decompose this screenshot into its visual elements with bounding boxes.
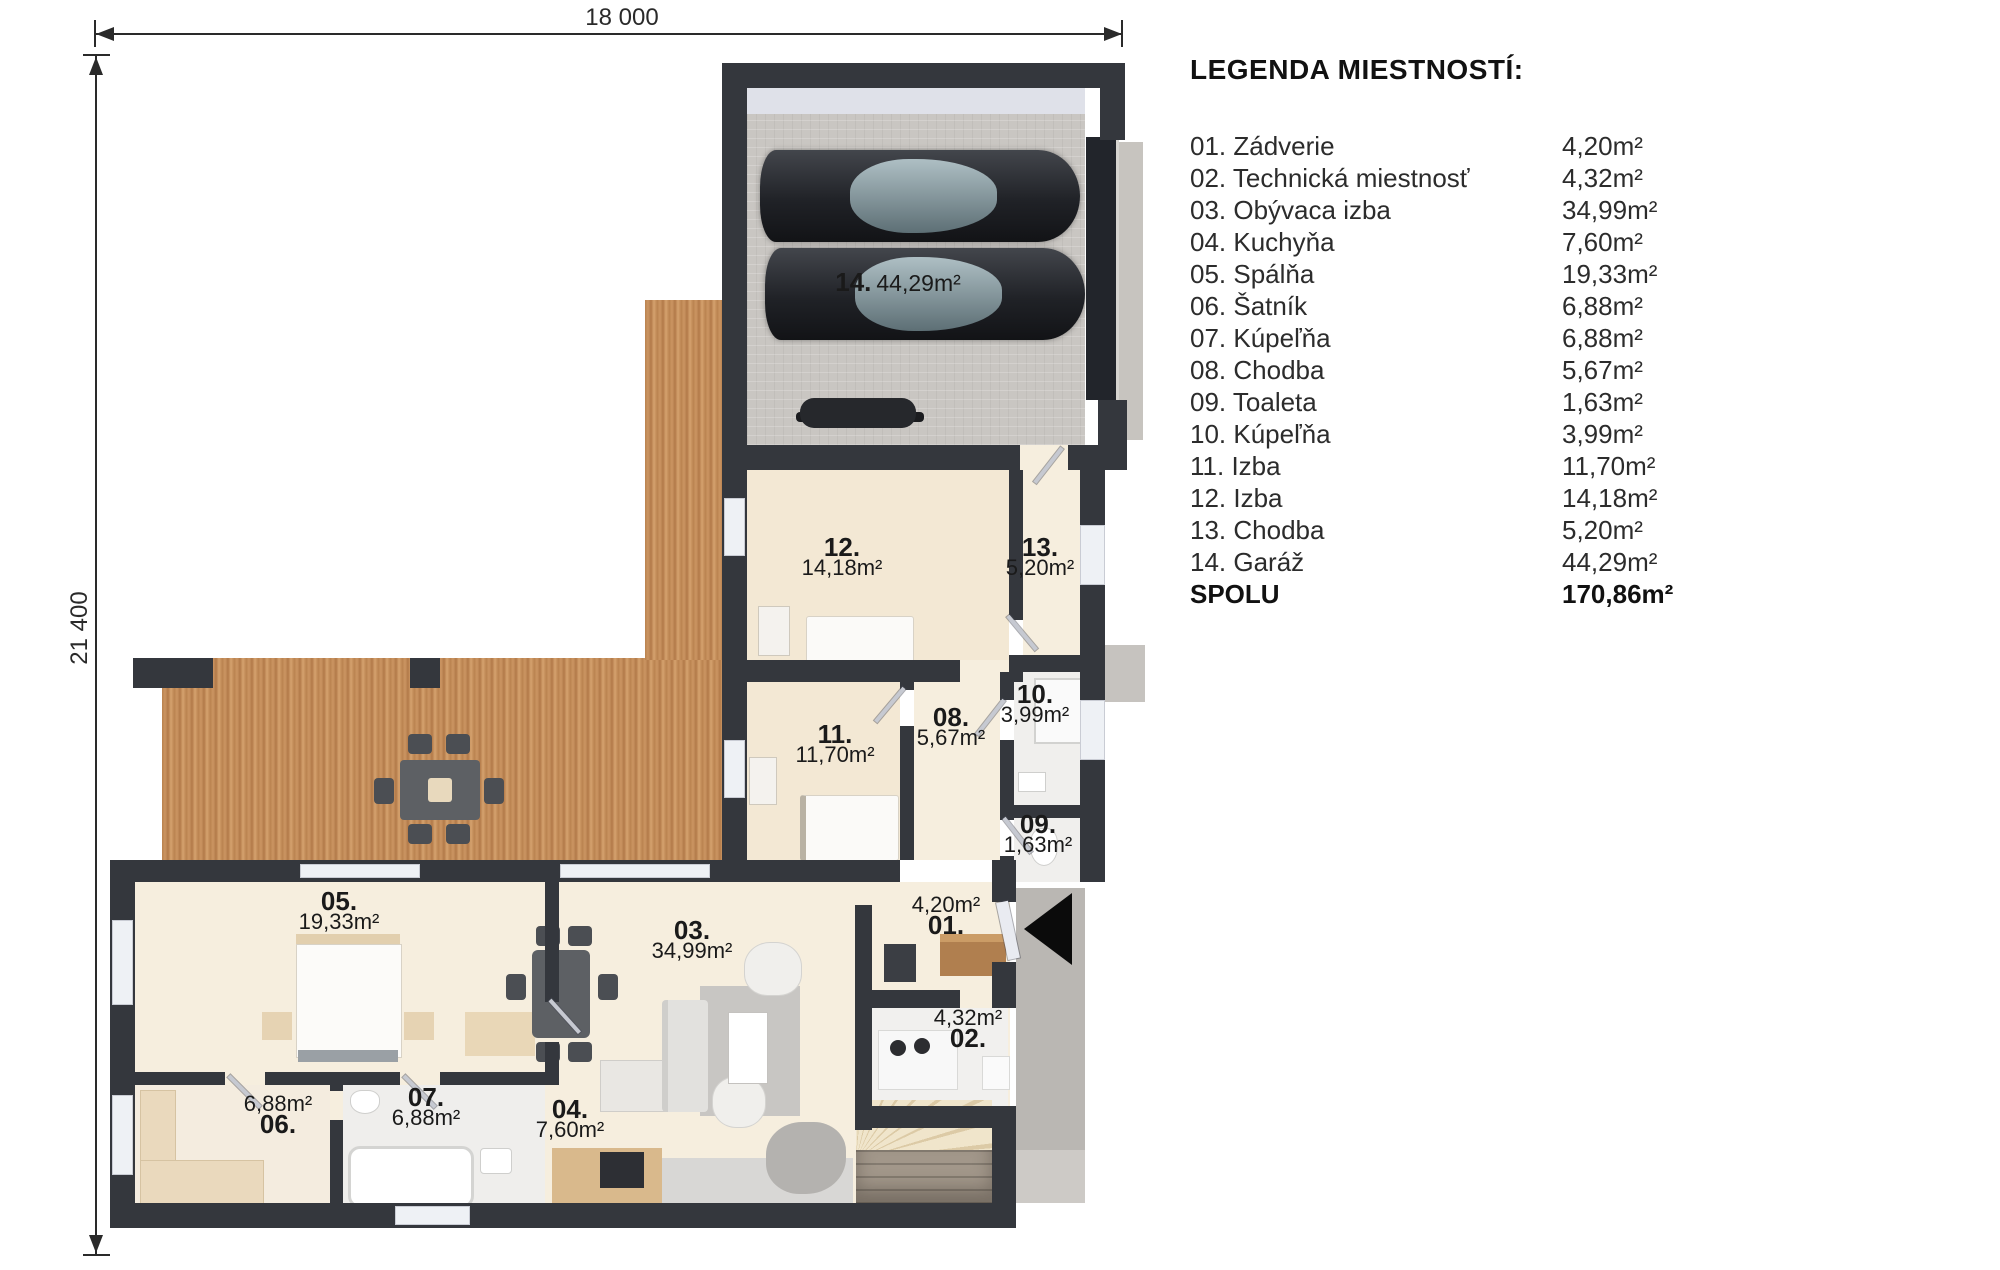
garage-wall-bottom-right (1068, 445, 1125, 470)
dim-label-top: 18 000 (585, 4, 658, 32)
floor-terrace-strip (645, 300, 722, 660)
sink-07 (480, 1148, 512, 1174)
legend-row: 11. Izba11,70m² (1190, 450, 1673, 482)
room-label-14: 14.44,29m² (835, 272, 961, 295)
bathtub (348, 1146, 474, 1208)
legend-row: 04. Kuchyňa7,60m² (1190, 226, 1673, 258)
terrace-chair (374, 778, 394, 804)
legend-row: 01. Zádverie4,20m² (1190, 130, 1673, 162)
desk-room-11 (749, 757, 777, 805)
garage-wall-ledge (747, 88, 1085, 114)
dresser-room-05 (465, 1012, 535, 1056)
desk-room-12 (758, 606, 790, 656)
terrace-chair (446, 734, 470, 754)
room-label-07: 07.6,88m² (392, 1087, 460, 1128)
nightstand-left (262, 1012, 292, 1040)
bed-room-05 (296, 944, 402, 1058)
wall-11-08 (900, 726, 914, 860)
dim-arrow-left-icon (96, 27, 114, 41)
terrace-wall-stub-left (133, 658, 213, 688)
driveway-strip (1117, 142, 1143, 440)
room-label-05: 05.19,33m² (299, 891, 380, 932)
room-label-03: 03.34,99m² (652, 920, 733, 961)
legend-row-total: SPOLU170,86m² (1190, 578, 1673, 610)
legend-rows: 01. Zádverie4,20m² 02. Technická miestno… (1190, 130, 1673, 610)
entry-wardrobe (884, 944, 916, 982)
wall-05-bottom-b (265, 1072, 400, 1085)
legend-row: 14. Garáž44,29m² (1190, 546, 1673, 578)
wall-entry-right-a (992, 860, 1016, 902)
wall-entry-right-b (992, 962, 1016, 1008)
legend-row: 10. Kúpeľňa3,99m² (1190, 418, 1673, 450)
dim-arrow-down-icon (89, 1235, 103, 1253)
dim-arrow-right-icon (1104, 27, 1122, 41)
headboard-room-05 (296, 934, 400, 944)
wall-08-10-b (1000, 740, 1014, 820)
car-glass (850, 159, 997, 233)
mid-wall-right-a (1080, 470, 1105, 525)
dining-chair (568, 1042, 592, 1062)
garage-wall-top (722, 63, 1125, 88)
legend-row: 06. Šatník6,88m² (1190, 290, 1673, 322)
wall-05-03-a (545, 882, 559, 1002)
window-bath-07 (395, 1206, 470, 1225)
wardrobe-06-bottom (140, 1160, 264, 1204)
dining-chair (598, 974, 618, 1000)
legend-title: LEGENDA MIESTNOSTÍ: (1190, 54, 1673, 86)
kitchen-cooktop (600, 1152, 644, 1188)
coffee-table (728, 1012, 768, 1084)
mid-wall-right-c (1080, 760, 1105, 882)
wall-05-bottom-a (135, 1072, 225, 1085)
room-label-02: 4,32m²02. (934, 1008, 1002, 1049)
garage-door-slab (1086, 137, 1119, 400)
wall-05-bottom-c (440, 1072, 545, 1085)
legend-row: 09. Toaleta1,63m² (1190, 386, 1673, 418)
terrace-chair (446, 824, 470, 844)
terrace-chair (408, 734, 432, 754)
legend-row: 05. Spálňa19,33m² (1190, 258, 1673, 290)
wall-stairs-right (992, 1106, 1016, 1203)
entrance-arrow-icon (1024, 893, 1072, 965)
beanbag-chair (766, 1122, 846, 1194)
dim-line-left (95, 55, 97, 1255)
wall-bath10-top (1023, 655, 1080, 672)
slider-living-terrace (560, 864, 710, 878)
room-label-09: 09.1,63m² (1004, 814, 1072, 855)
terrace-table-plate (428, 778, 452, 802)
sink-10 (1018, 772, 1046, 792)
window-room-05-terrace (300, 864, 420, 878)
car-top (760, 150, 1080, 242)
dim-label-left: 21 400 (66, 591, 94, 664)
dining-chair (506, 974, 526, 1000)
stairs-lower-flight (856, 1150, 992, 1203)
bottom-section-top-wall-right (722, 860, 900, 882)
room-label-13: 13.5,20m² (1006, 537, 1074, 578)
wall-06-07 (330, 1120, 343, 1203)
terrace-chair (484, 778, 504, 804)
window-bath-10 (1080, 700, 1105, 760)
bed-room-11 (800, 795, 899, 861)
legend-row: 03. Obývaca izba34,99m² (1190, 194, 1673, 226)
room-label-10: 10.3,99m² (1001, 684, 1069, 725)
sofa (662, 1000, 708, 1112)
walkway-outside-lower (1016, 1150, 1085, 1203)
motorcycle (800, 398, 916, 428)
mid-wall-right-b (1080, 585, 1105, 700)
wall-02-bottom (855, 1106, 1008, 1128)
window-room-13 (1080, 525, 1105, 585)
tech-burner (914, 1038, 930, 1054)
garage-wall-bottom-left (722, 445, 1020, 470)
armchair-top (744, 942, 802, 996)
garage-pillar-right-top (1100, 63, 1125, 140)
window-room-11 (724, 740, 745, 798)
wall-12-11 (747, 660, 960, 682)
dim-tick-left-bottom (83, 1254, 110, 1256)
dim-tick-left-top (83, 54, 110, 56)
floor-plan-page: 14.44,29m² 12.14,18m² 13.5,20m² 10.3,99m… (0, 0, 2000, 1270)
room-label-01: 4,20m²01. (912, 895, 980, 936)
nightstand-right (404, 1012, 434, 1040)
room-label-08: 08.5,67m² (917, 707, 985, 748)
tech-burner (890, 1040, 906, 1056)
wall-06-07-stub (330, 1085, 343, 1091)
room-label-04: 04.7,60m² (536, 1099, 604, 1140)
legend-row: 07. Kúpeľňa6,88m² (1190, 322, 1673, 354)
house-wall-bottom (110, 1203, 1016, 1228)
room-label-11: 11.11,70m² (795, 724, 874, 765)
window-left-06 (112, 1095, 133, 1175)
legend-row: 02. Technická miestnosť4,32m² (1190, 162, 1673, 194)
deck-strip-stub-wall (722, 300, 747, 345)
legend-row: 08. Chodba5,67m² (1190, 354, 1673, 386)
dining-table-indoor (532, 950, 590, 1038)
legend-row: 13. Chodba5,20m² (1190, 514, 1673, 546)
legend-panel: LEGENDA MIESTNOSTÍ: 01. Zádverie4,20m² 0… (1190, 54, 1673, 610)
room-label-06: 6,88m²06. (244, 1094, 312, 1135)
terrace-wall-stub-mid (410, 658, 440, 688)
toilet-07 (350, 1090, 380, 1114)
terrace-chair (408, 824, 432, 844)
dim-line-top (95, 33, 1123, 35)
dining-chair (568, 926, 592, 946)
bench-room-05 (298, 1050, 398, 1062)
window-room-12 (724, 498, 745, 556)
tech-unit (982, 1056, 1010, 1090)
room-label-12: 12.14,18m² (802, 537, 883, 578)
legend-row: 12. Izba14,18m² (1190, 482, 1673, 514)
wall-05-03-b (545, 1042, 559, 1085)
garage-wall-left (722, 63, 747, 470)
dim-arrow-up-icon (89, 57, 103, 75)
window-left-05 (112, 920, 133, 1005)
